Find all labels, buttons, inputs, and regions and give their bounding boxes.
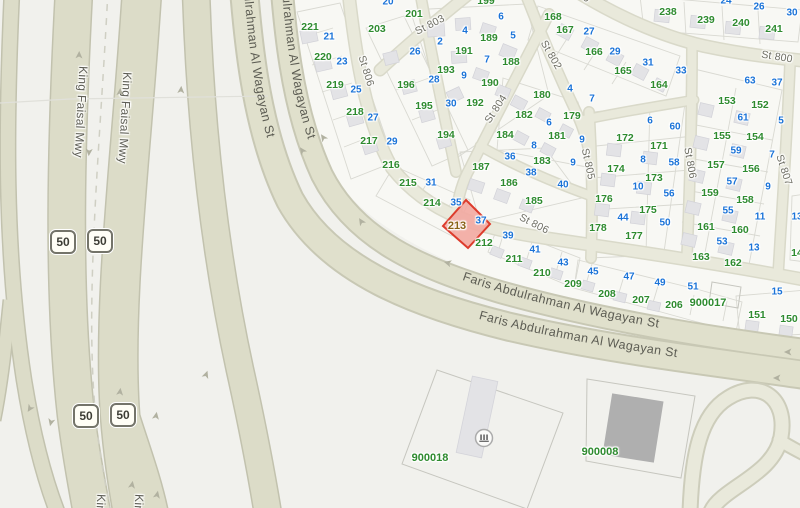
map-canvas[interactable]: Faris Abdulrahman Al Wagayan St Faris Ab… xyxy=(0,0,800,508)
map-base-layer: Faris Abdulrahman Al Wagayan St Faris Ab… xyxy=(0,0,800,508)
building-900008 xyxy=(602,393,663,462)
poi-mosque-icon[interactable] xyxy=(476,430,493,447)
